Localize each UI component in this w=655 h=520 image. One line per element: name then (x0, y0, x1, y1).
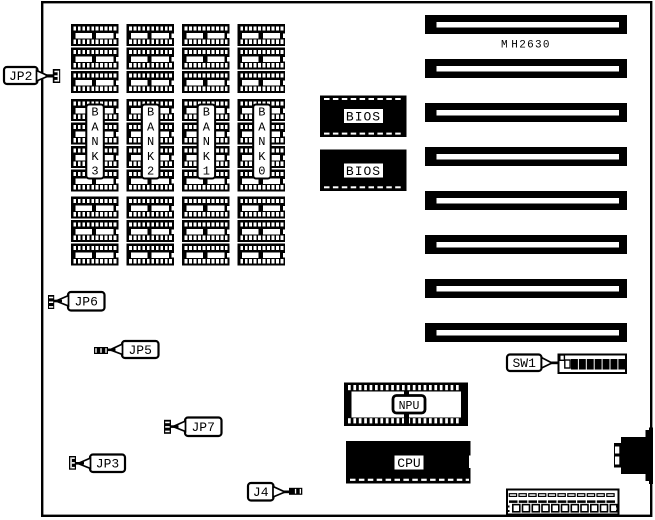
svg-text:JP5: JP5 (128, 343, 151, 358)
svg-text:A: A (258, 120, 266, 134)
svg-text:SW1: SW1 (512, 356, 536, 371)
svg-text:B: B (91, 106, 98, 120)
svg-text:B: B (147, 106, 154, 120)
svg-text:JP2: JP2 (9, 69, 32, 84)
svg-text:A: A (203, 120, 211, 134)
svg-text:N: N (147, 135, 154, 149)
svg-text:A: A (91, 120, 99, 134)
svg-text:0: 0 (258, 165, 265, 179)
svg-text:B: B (258, 106, 265, 120)
svg-text:JP6: JP6 (74, 295, 97, 310)
svg-text:JP3: JP3 (96, 457, 119, 472)
svg-text:BIOS: BIOS (346, 164, 381, 179)
svg-text:N: N (258, 135, 265, 149)
svg-text:K: K (258, 150, 266, 164)
svg-text:BIOS: BIOS (346, 110, 381, 125)
svg-text:1: 1 (203, 165, 210, 179)
svg-text:K: K (91, 150, 99, 164)
svg-text:NPU: NPU (399, 400, 420, 413)
svg-text:3: 3 (91, 165, 98, 179)
svg-text:N: N (91, 135, 98, 149)
svg-text:K: K (147, 150, 155, 164)
svg-text:B: B (203, 106, 210, 120)
svg-text:CPU: CPU (397, 456, 420, 471)
svg-text:JP7: JP7 (191, 420, 214, 435)
svg-text:2: 2 (147, 165, 154, 179)
svg-text:K: K (203, 150, 211, 164)
svg-text:A: A (147, 120, 155, 134)
svg-text:M: M (501, 40, 508, 52)
svg-text:H2630: H2630 (511, 40, 551, 52)
svg-text:N: N (203, 135, 210, 149)
svg-text:J4: J4 (253, 485, 269, 500)
